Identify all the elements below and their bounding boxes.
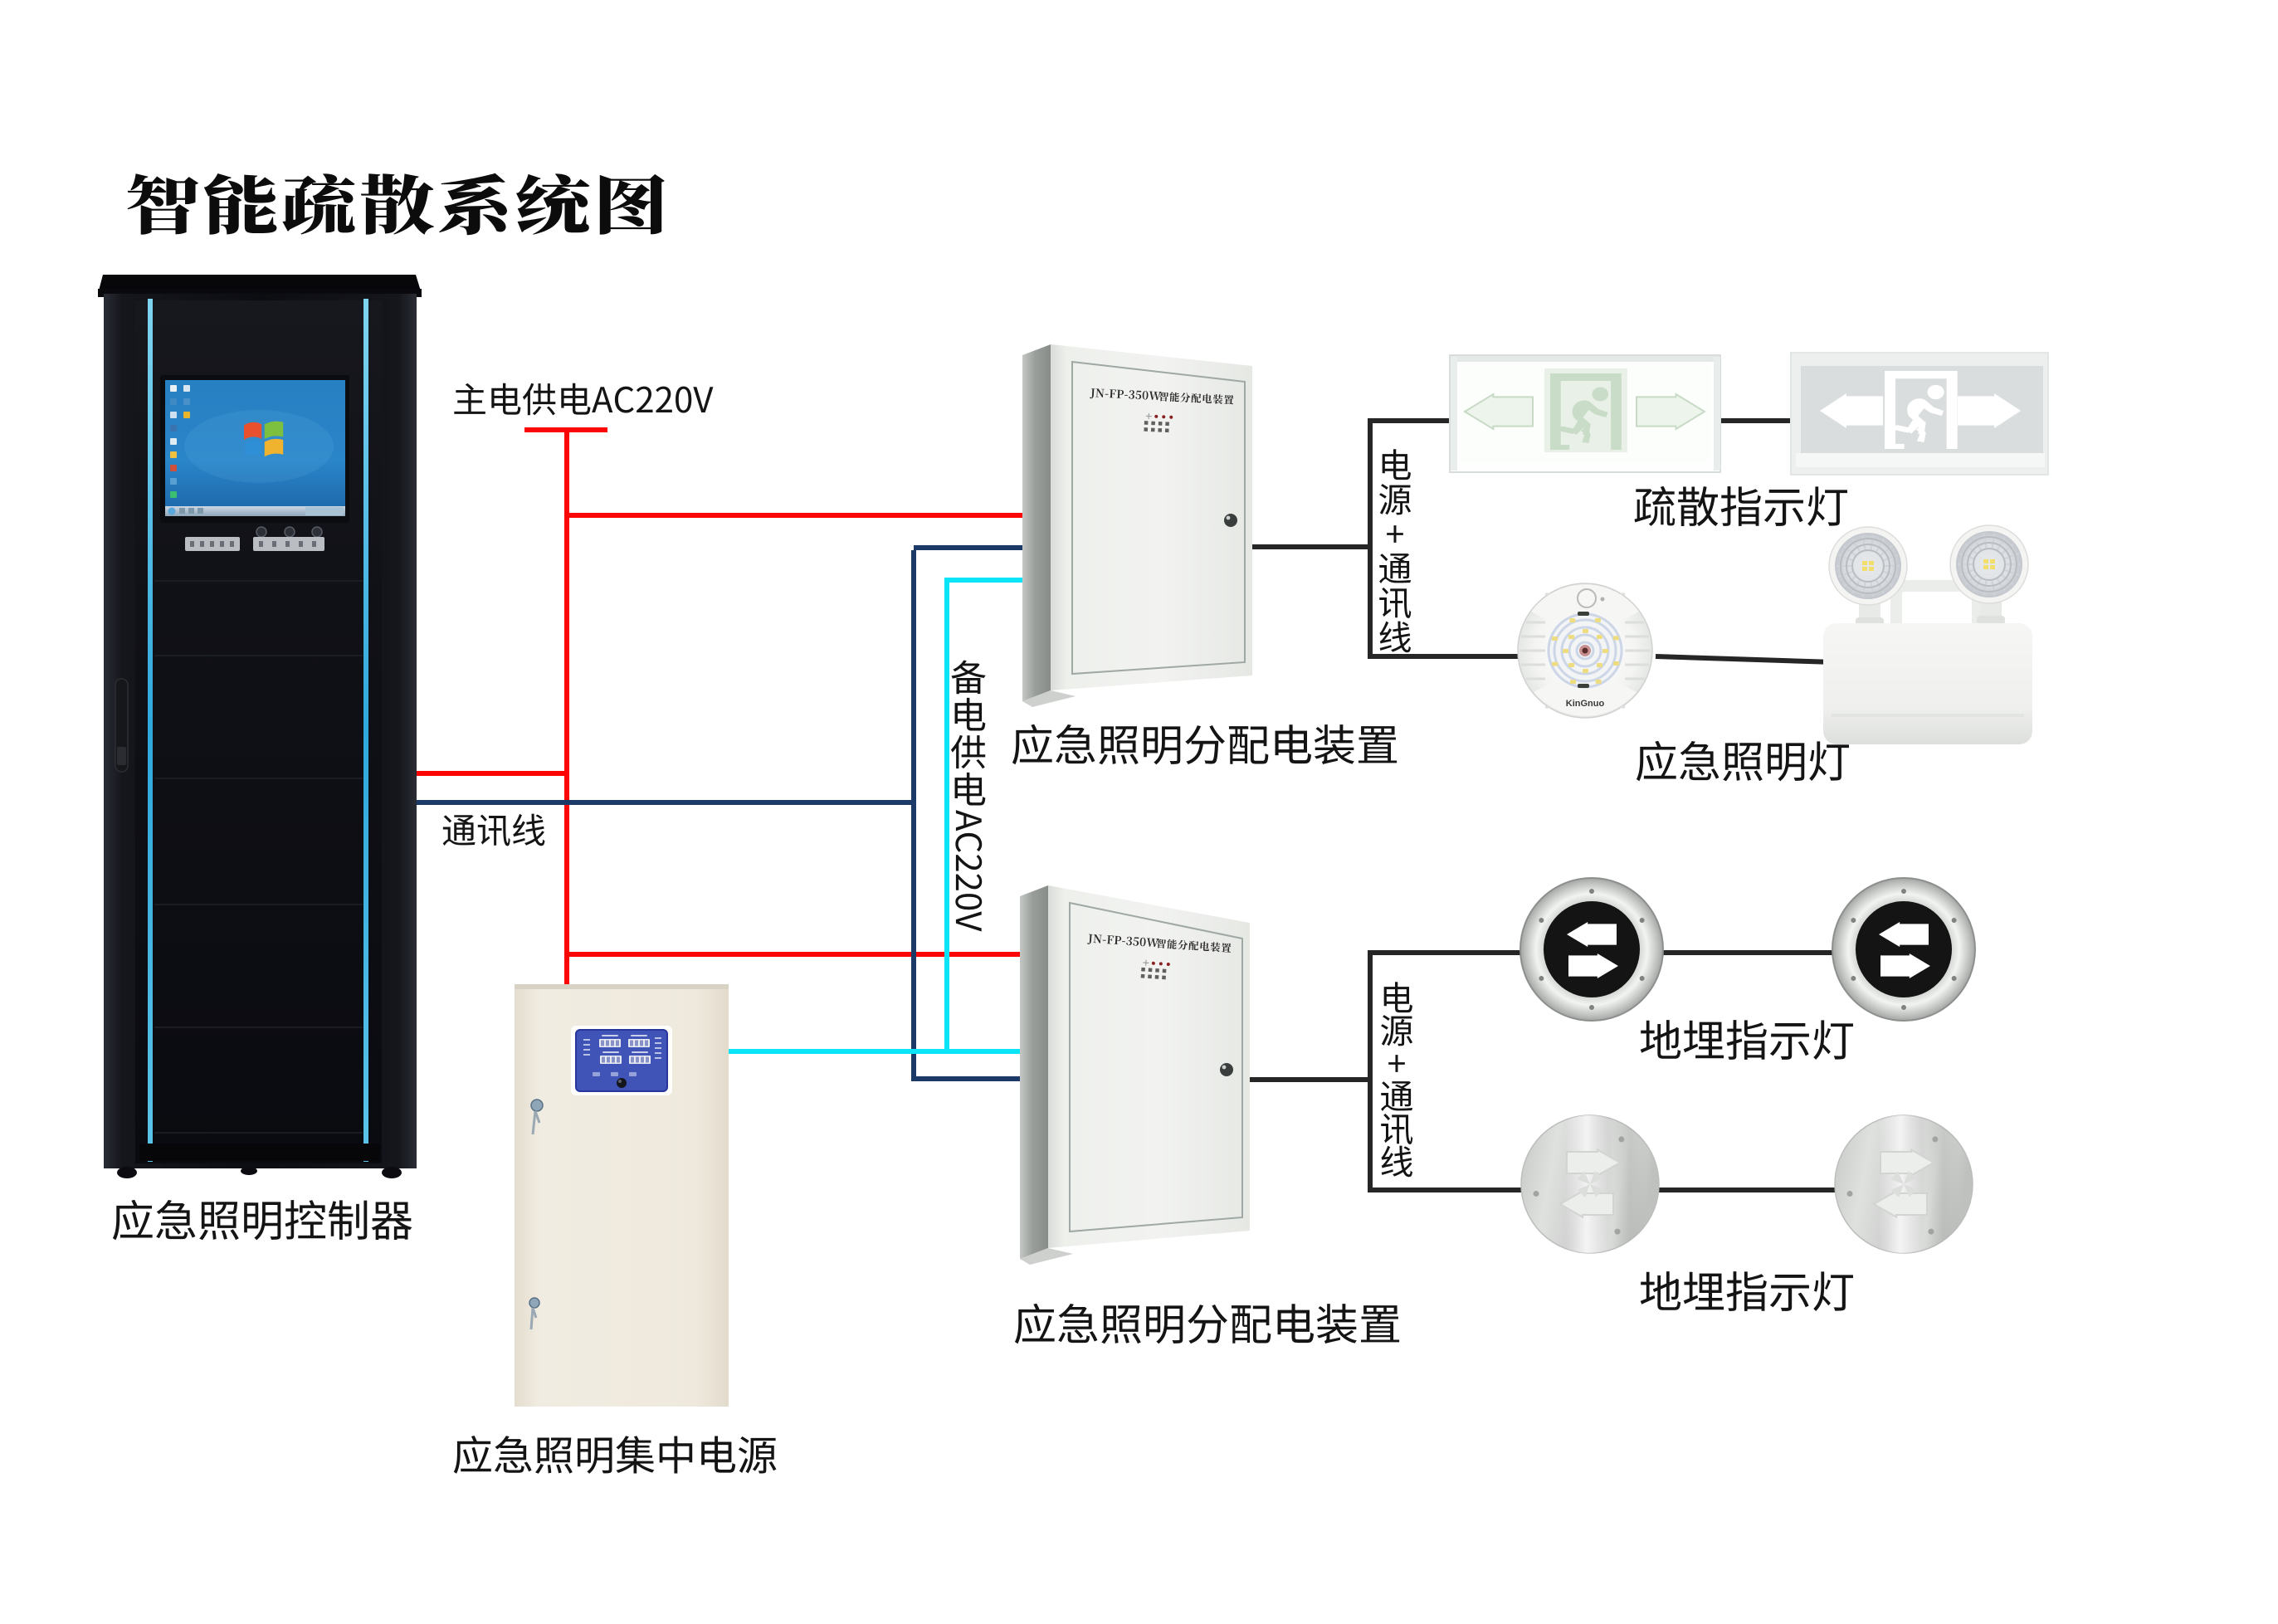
svg-text:KinGnuo: KinGnuo [1566,699,1605,709]
